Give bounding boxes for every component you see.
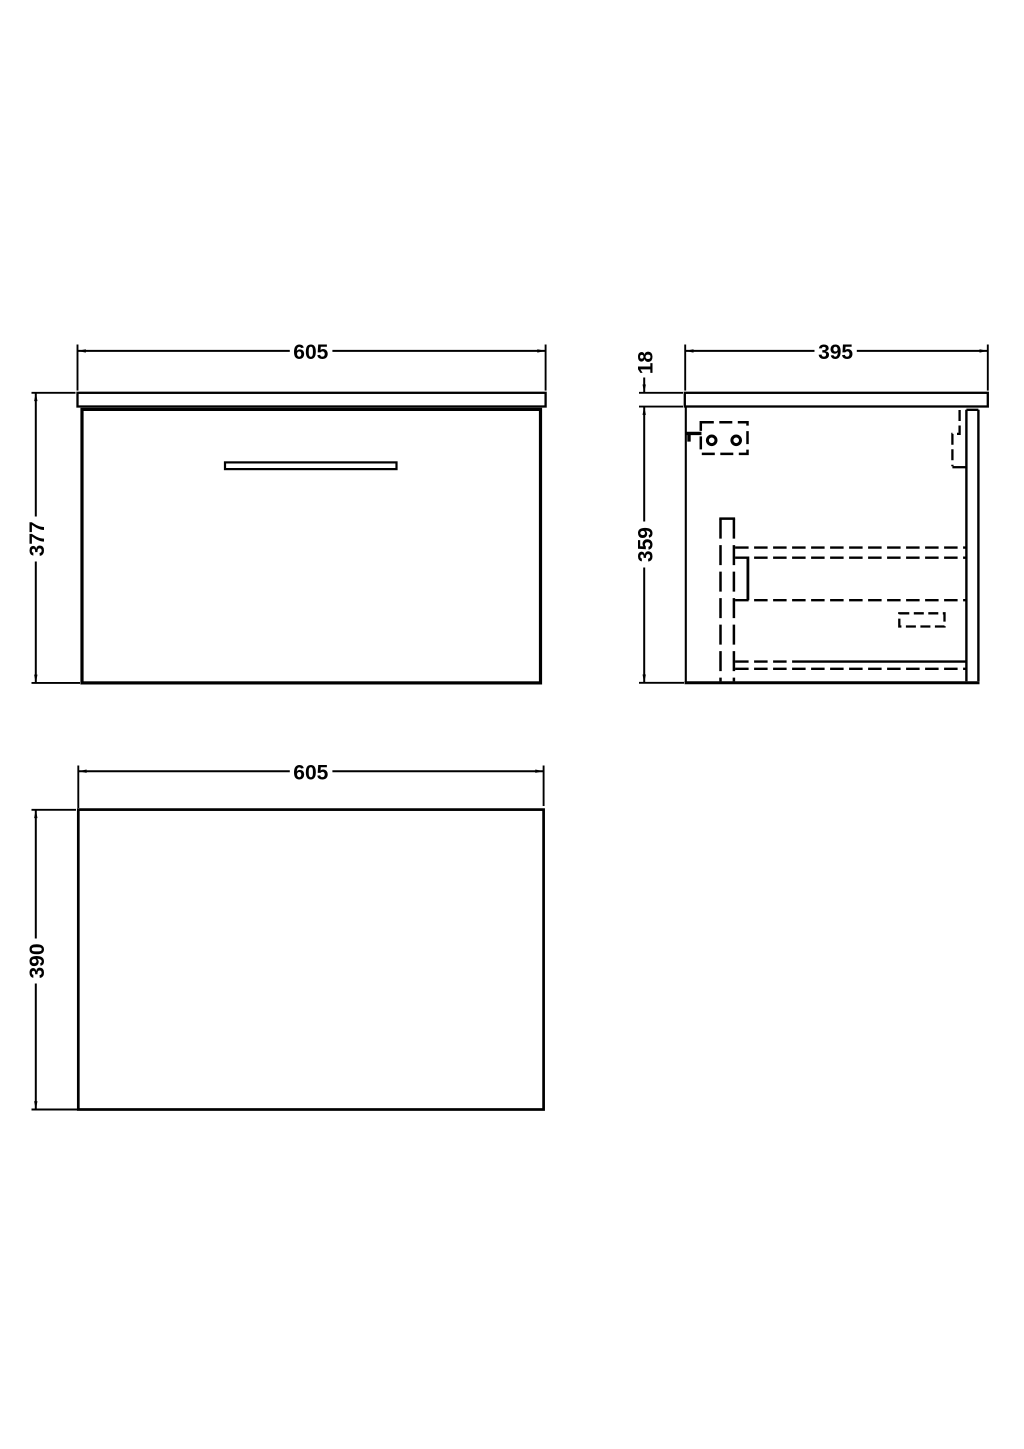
svg-text:377: 377 xyxy=(26,521,49,556)
svg-text:395: 395 xyxy=(818,341,853,364)
svg-text:18: 18 xyxy=(634,351,657,375)
svg-text:605: 605 xyxy=(293,762,328,785)
svg-text:359: 359 xyxy=(634,527,657,562)
svg-text:605: 605 xyxy=(293,341,328,364)
svg-text:390: 390 xyxy=(26,943,49,978)
